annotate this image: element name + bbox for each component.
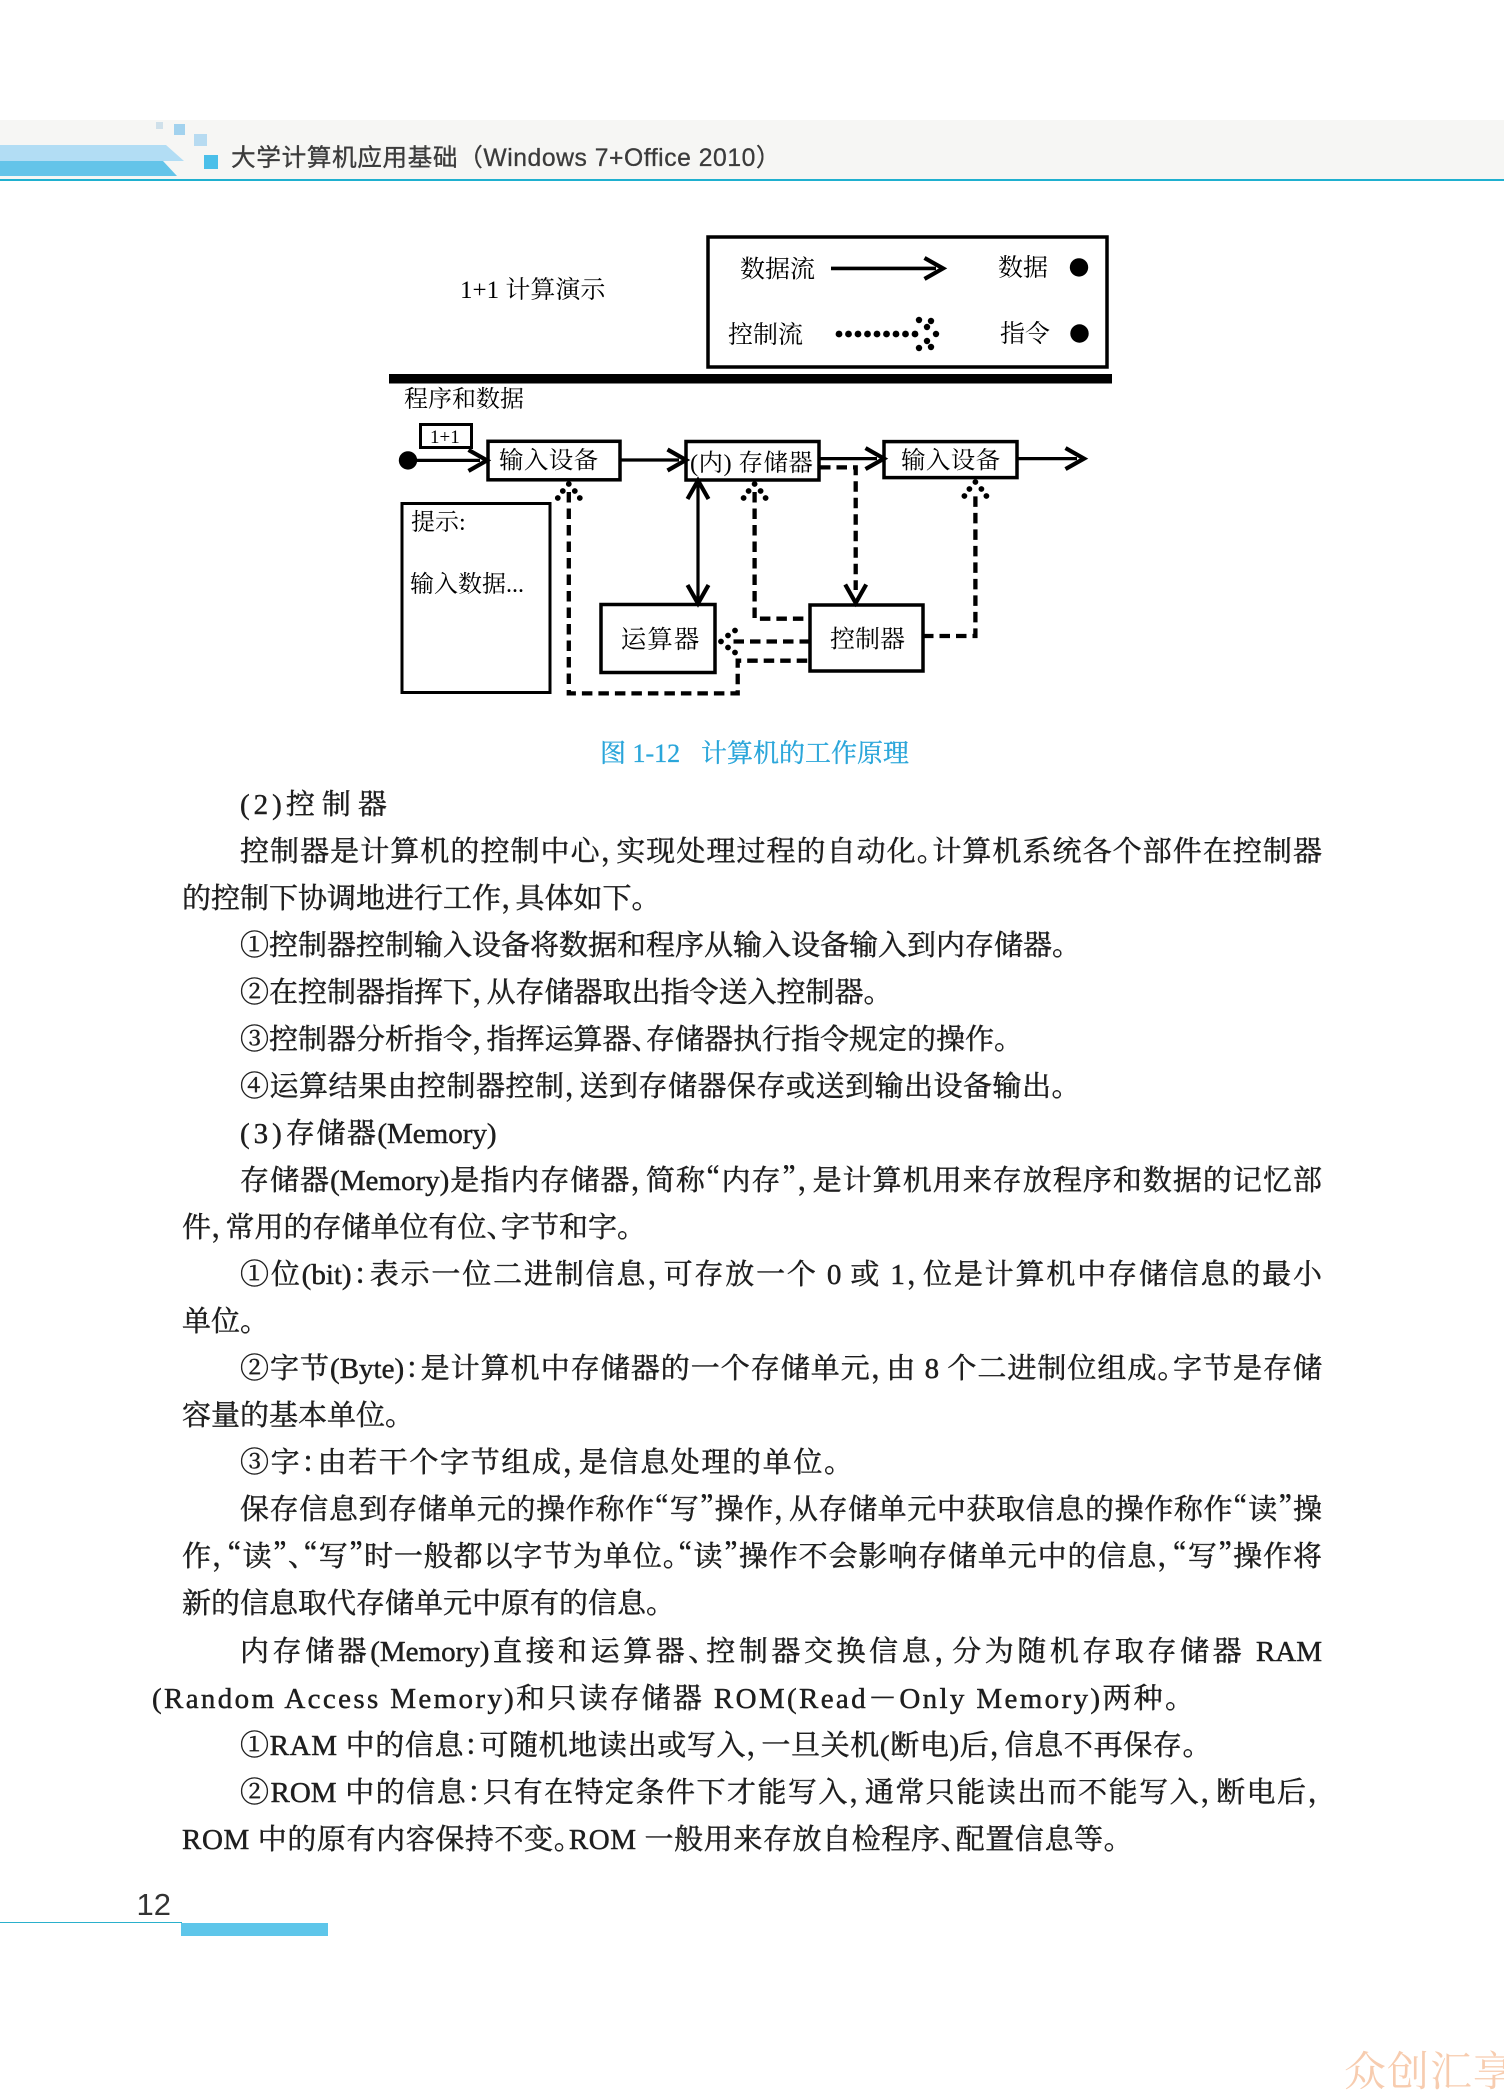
svg-text:1+1 计算演示: 1+1 计算演示 bbox=[460, 270, 606, 306]
svg-text:运算器: 运算器 bbox=[621, 620, 701, 656]
svg-text:(内) 存储器: (内) 存储器 bbox=[690, 444, 813, 479]
svg-text:提示:: 提示: bbox=[411, 502, 466, 537]
svg-text:数据流: 数据流 bbox=[740, 250, 815, 286]
svg-text:程序和数据: 程序和数据 bbox=[404, 379, 524, 414]
svg-text:指令: 指令 bbox=[1000, 314, 1050, 350]
svg-text:1+1: 1+1 bbox=[430, 422, 460, 449]
svg-text:输入设备: 输入设备 bbox=[901, 442, 1001, 477]
svg-text:控制流: 控制流 bbox=[728, 315, 803, 351]
svg-text:输入数据...: 输入数据... bbox=[410, 564, 524, 599]
svg-text:数据: 数据 bbox=[998, 248, 1048, 284]
svg-text:控制器: 控制器 bbox=[830, 620, 905, 656]
svg-text:输入设备: 输入设备 bbox=[499, 442, 599, 477]
